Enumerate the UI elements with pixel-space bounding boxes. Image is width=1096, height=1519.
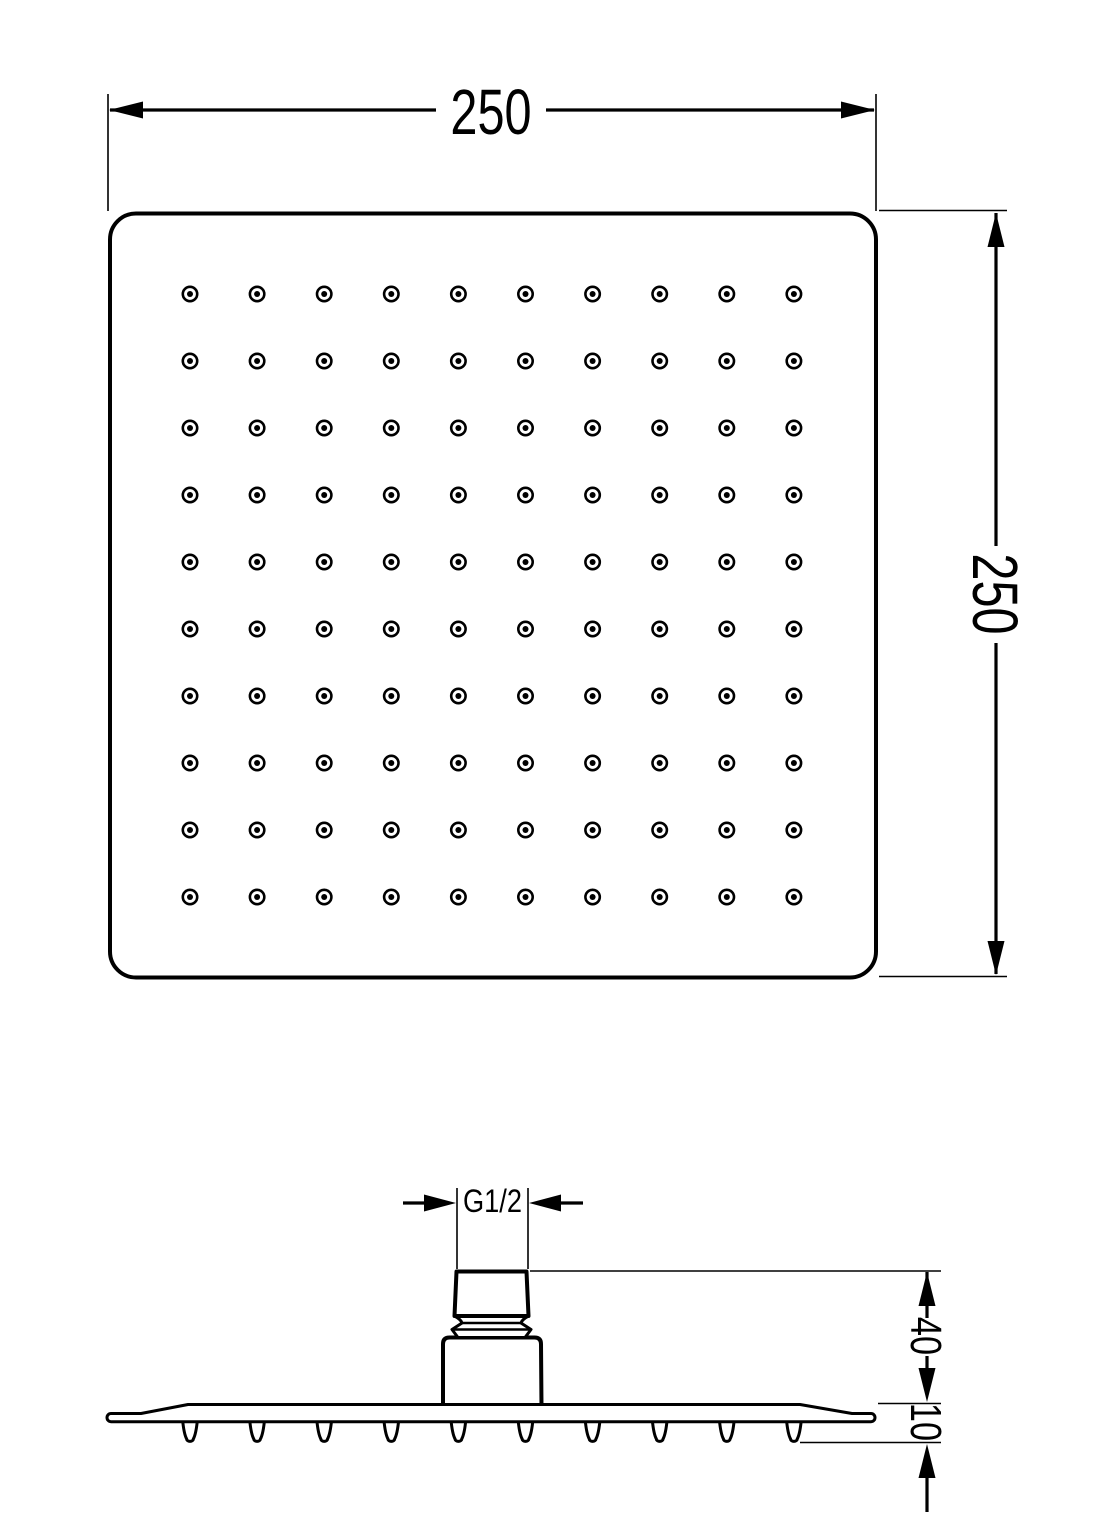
nozzle-center-dot [455,358,461,364]
nozzle-center-dot [657,894,663,900]
nozzle-center-dot [388,626,394,632]
nozzle-center-dot [523,425,529,431]
nozzle-center-dot [455,492,461,498]
nozzle-center-dot [724,358,730,364]
nozzle-center-dot [724,425,730,431]
nozzle-center-dot [254,559,260,565]
plate-thickness-label: 10 [901,1403,950,1441]
height-dimension-label: 250 [958,553,1029,634]
nozzle-center-dot [455,827,461,833]
nozzle-center-dot [254,358,260,364]
nozzle-center-dot [590,559,596,565]
nozzle-center-dot [724,894,730,900]
side-dimensions: 40 10 [530,1271,950,1512]
arrowhead-down-icon [919,1368,936,1402]
plate-profile [107,1405,875,1422]
nozzle-center-dot [254,291,260,297]
nozzle-center-dot [321,425,327,431]
nozzle-center-dot [523,559,529,565]
nozzle-center-dot [455,291,461,297]
nozzle-center-dot [523,827,529,833]
nozzle-center-dot [657,693,663,699]
arrowhead-right-icon [424,1195,456,1212]
nozzle-center-dot [523,291,529,297]
nozzle-center-dot [523,894,529,900]
nozzle-center-dot [254,626,260,632]
thread-pipe [455,1272,529,1317]
nozzle-center-dot [321,760,327,766]
nozzle-center-dot [791,693,797,699]
nozzle-center-dot [254,693,260,699]
nozzle-center-dot [388,291,394,297]
arrowhead-right-icon [841,102,875,119]
nozzle-center-dot [590,827,596,833]
nozzle-center-dot [724,626,730,632]
nozzle-center-dot [254,894,260,900]
nozzle-center-dot [657,291,663,297]
nozzle-center-dot [791,492,797,498]
nozzle-center-dot [590,291,596,297]
nozzle-center-dot [724,827,730,833]
arrowhead-down-icon [988,941,1005,975]
arrowhead-up-icon [919,1444,936,1478]
nozzle-center-dot [590,693,596,699]
nozzle-center-dot [321,492,327,498]
nozzle-center-dot [187,291,193,297]
thread-size-label: G1/2 [463,1184,522,1220]
nozzle-center-dot [388,894,394,900]
nozzle-center-dot [187,425,193,431]
nozzle-center-dot [455,425,461,431]
nozzle-center-dot [657,626,663,632]
nozzle-center-dot [791,760,797,766]
nozzle-center-dot [791,626,797,632]
nozzle-center-dot [657,425,663,431]
nozzle-center-dot [523,358,529,364]
nozzle-center-dot [254,760,260,766]
nozzle-center-dot [523,626,529,632]
top-view [110,214,876,978]
nozzle-center-dot [321,358,327,364]
nozzle-center-dot [187,559,193,565]
nozzle-center-dot [724,559,730,565]
nozzle-center-dot [657,760,663,766]
nozzle-center-dot [590,358,596,364]
nozzle-center-dot [523,492,529,498]
nozzle-center-dot [187,894,193,900]
nozzle-center-dot [321,559,327,565]
nozzle-center-dot [388,760,394,766]
nozzle-center-dot [388,827,394,833]
shower-head-technical-drawing: 250 250 G1/2 [0,0,1096,1519]
nozzle-center-dot [388,559,394,565]
connector-collar [452,1316,531,1338]
nozzle-center-dot [388,492,394,498]
thread-dimension: G1/2 [403,1184,583,1269]
nozzle-center-dot [455,626,461,632]
nozzle-center-dot [657,559,663,565]
nozzle-center-dot [590,760,596,766]
width-dimension-label: 250 [450,78,531,149]
nozzle-center-dot [187,760,193,766]
nozzle-center-dot [724,760,730,766]
nozzle-center-dot [791,358,797,364]
nozzle-center-dot [791,559,797,565]
nozzle-center-dot [657,358,663,364]
side-view [107,1272,875,1442]
nozzle-center-dot [590,894,596,900]
nozzle-center-dot [388,358,394,364]
arrowhead-left-icon [109,102,143,119]
drawing-page: 250 250 G1/2 [0,0,1096,1519]
nozzle-center-dot [254,425,260,431]
nozzle-center-dot [791,827,797,833]
nozzle-center-dot [388,693,394,699]
nozzle-center-dot [791,425,797,431]
connector-base [443,1338,542,1408]
nozzle-center-dot [523,760,529,766]
arrowhead-up-icon [988,213,1005,247]
nozzle-center-dot [187,626,193,632]
nozzle-center-dot [254,827,260,833]
nozzle-center-dot [388,425,394,431]
nozzle-center-dot [523,693,529,699]
nozzle-center-dot [590,425,596,431]
nozzle-center-dot [791,894,797,900]
nozzle-center-dot [657,827,663,833]
arrowhead-left-icon [529,1195,561,1212]
nozzle-center-dot [724,492,730,498]
nozzle-center-dot [791,291,797,297]
nozzle-center-dot [187,827,193,833]
nozzle-center-dot [187,492,193,498]
nozzle-center-dot [455,894,461,900]
connector-height-label: 40 [901,1317,950,1355]
nozzle-center-dot [321,827,327,833]
nozzle-center-dot [590,492,596,498]
shower-face-outline [110,214,876,978]
nozzle-center-dot [724,693,730,699]
width-dimension: 250 [108,78,876,211]
height-dimension: 250 [879,211,1029,977]
nozzle-center-dot [321,291,327,297]
nozzle-center-dot [254,492,260,498]
nozzle-center-dot [455,693,461,699]
nozzle-center-dot [590,626,596,632]
nozzle-center-dot [657,492,663,498]
nozzle-center-dot [455,760,461,766]
nozzle-center-dot [321,894,327,900]
nozzle-center-dot [187,693,193,699]
nozzle-center-dot [724,291,730,297]
nozzle-center-dot [321,626,327,632]
nozzle-center-dot [187,358,193,364]
nozzle-center-dot [321,693,327,699]
nozzle-center-dot [455,559,461,565]
